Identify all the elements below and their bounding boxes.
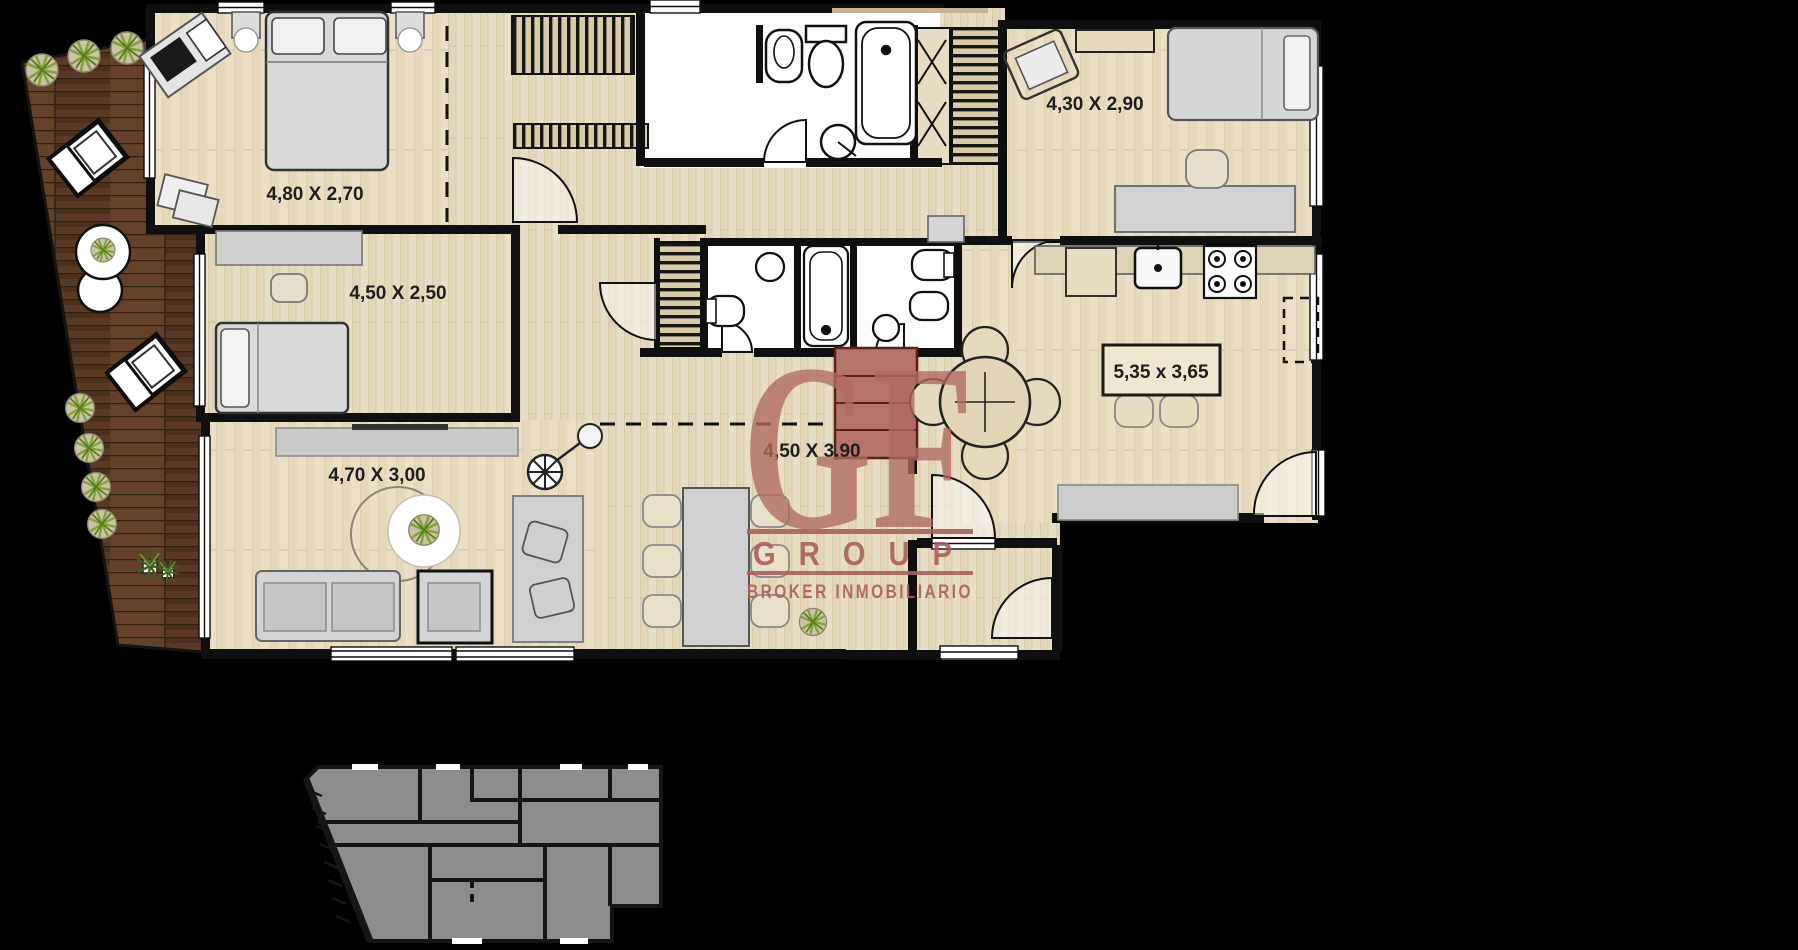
key-plan (306, 764, 661, 944)
chair (271, 274, 307, 302)
dining-table (683, 488, 749, 646)
lamp (234, 28, 258, 52)
dining-chair (643, 495, 681, 527)
cabinet (928, 216, 964, 242)
balcony-ledge (832, 8, 988, 13)
room-label-living: 4,70 X 3,00 (328, 465, 425, 486)
entry-threshold (940, 646, 1018, 659)
bedroom-2-furniture (216, 231, 362, 413)
sink (756, 253, 784, 281)
counter-cabinet (1066, 248, 1116, 296)
window (194, 254, 205, 406)
window (650, 0, 700, 13)
pillow (272, 18, 324, 54)
watermark-rule (747, 529, 973, 534)
pillow (221, 329, 249, 407)
window (144, 64, 155, 178)
window (456, 647, 574, 661)
watermark-group: GROUP (753, 535, 975, 572)
chair (1186, 150, 1228, 188)
dresser (216, 231, 362, 265)
watermark-rule (747, 571, 973, 575)
floor-plan-page: 4,80 X 2,70 4,50 X 2,50 4,30 X 2,90 4,70… (0, 0, 1798, 950)
sideboard (1058, 485, 1238, 520)
dining-chair (643, 595, 681, 627)
room-label-bedroom-2: 4,50 X 2,50 (349, 283, 446, 304)
tv-console (276, 428, 518, 456)
kitchen-sink (1135, 244, 1181, 288)
window (331, 647, 452, 661)
watermark-tagline: BROKER INMOBILIARIO (747, 582, 973, 603)
room-label-bedroom-1: 4,80 X 2,70 (266, 184, 363, 205)
wardrobe (512, 16, 634, 74)
pillow (334, 18, 386, 54)
pillow (1284, 36, 1310, 110)
room-label-bedroom-3: 4,30 X 2,90 (1046, 94, 1143, 115)
toilet (809, 41, 843, 87)
watermark: GF GROUP BROKER INMOBILIARIO (742, 316, 975, 603)
terrace-plant-icon (26, 54, 58, 86)
stool (1115, 395, 1153, 427)
shelf (1076, 30, 1154, 52)
dining-chair (643, 545, 681, 577)
floor-plan: 4,80 X 2,70 4,50 X 2,50 4,30 X 2,90 4,70… (0, 0, 1798, 950)
stool (1160, 395, 1198, 427)
desk (513, 496, 583, 642)
window (199, 436, 210, 638)
desk (1115, 186, 1295, 232)
stove (1204, 246, 1256, 298)
toilet-tank (806, 26, 846, 42)
room-label-kitchen: 5,35 x 3,65 (1113, 362, 1209, 383)
tv (352, 424, 448, 430)
lamp (398, 28, 422, 52)
